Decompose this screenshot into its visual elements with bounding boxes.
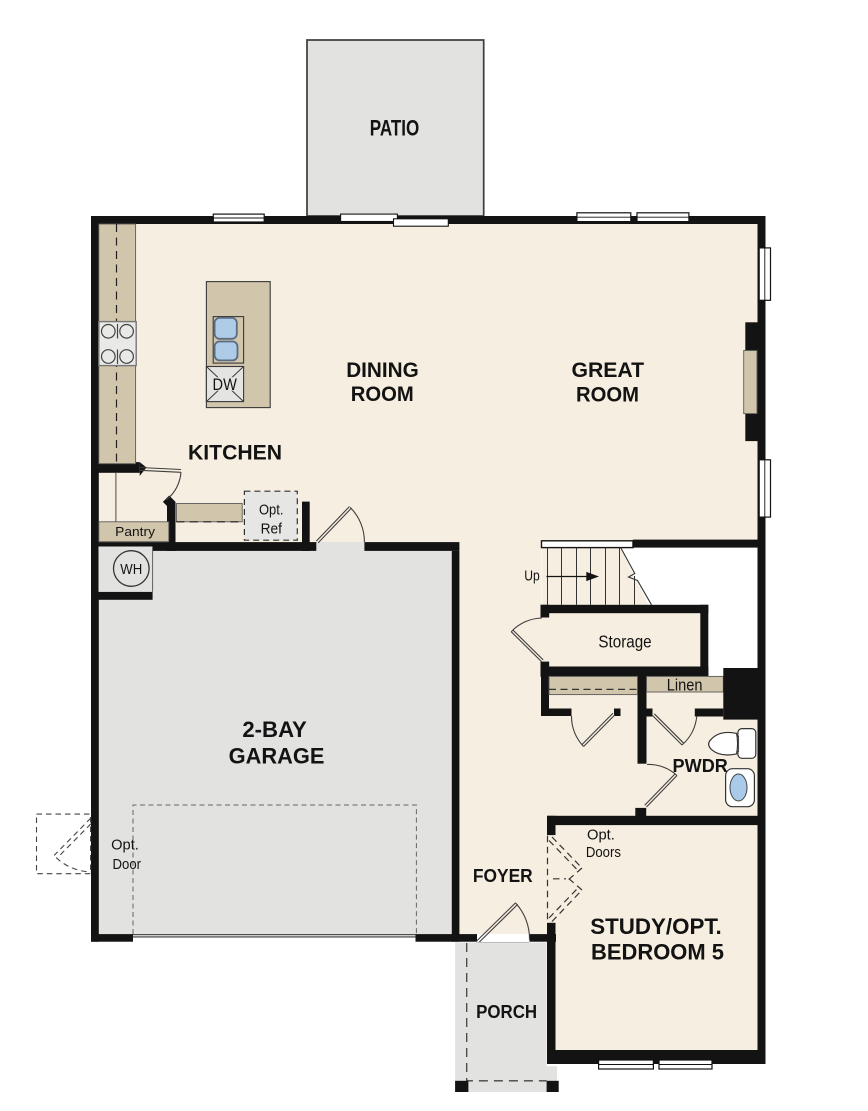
svg-text:PWDR: PWDR bbox=[673, 756, 728, 776]
svg-text:ROOM: ROOM bbox=[351, 382, 414, 406]
svg-text:Opt.: Opt. bbox=[111, 838, 139, 854]
svg-text:Doors: Doors bbox=[586, 845, 621, 861]
svg-text:GREAT: GREAT bbox=[571, 358, 644, 382]
svg-text:DINING: DINING bbox=[346, 358, 419, 382]
svg-text:DW: DW bbox=[213, 375, 237, 394]
svg-text:GARAGE: GARAGE bbox=[229, 744, 325, 769]
svg-text:Opt.: Opt. bbox=[587, 827, 615, 843]
svg-text:PATIO: PATIO bbox=[370, 116, 420, 141]
svg-text:PORCH: PORCH bbox=[476, 1002, 537, 1022]
svg-text:Ref: Ref bbox=[261, 522, 283, 538]
svg-text:FOYER: FOYER bbox=[473, 865, 533, 886]
svg-text:Up: Up bbox=[524, 569, 540, 585]
svg-text:ROOM: ROOM bbox=[576, 382, 639, 406]
svg-text:KITCHEN: KITCHEN bbox=[188, 441, 282, 465]
svg-text:Storage: Storage bbox=[598, 632, 651, 652]
svg-text:WH: WH bbox=[120, 561, 142, 578]
svg-text:Door: Door bbox=[113, 857, 142, 873]
svg-text:2-BAY: 2-BAY bbox=[242, 717, 307, 742]
svg-text:Linen: Linen bbox=[667, 676, 703, 695]
svg-text:Opt.: Opt. bbox=[259, 503, 284, 519]
svg-text:BEDROOM 5: BEDROOM 5 bbox=[591, 940, 724, 965]
svg-text:Pantry: Pantry bbox=[115, 524, 155, 539]
svg-text:STUDY/OPT.: STUDY/OPT. bbox=[590, 914, 722, 939]
